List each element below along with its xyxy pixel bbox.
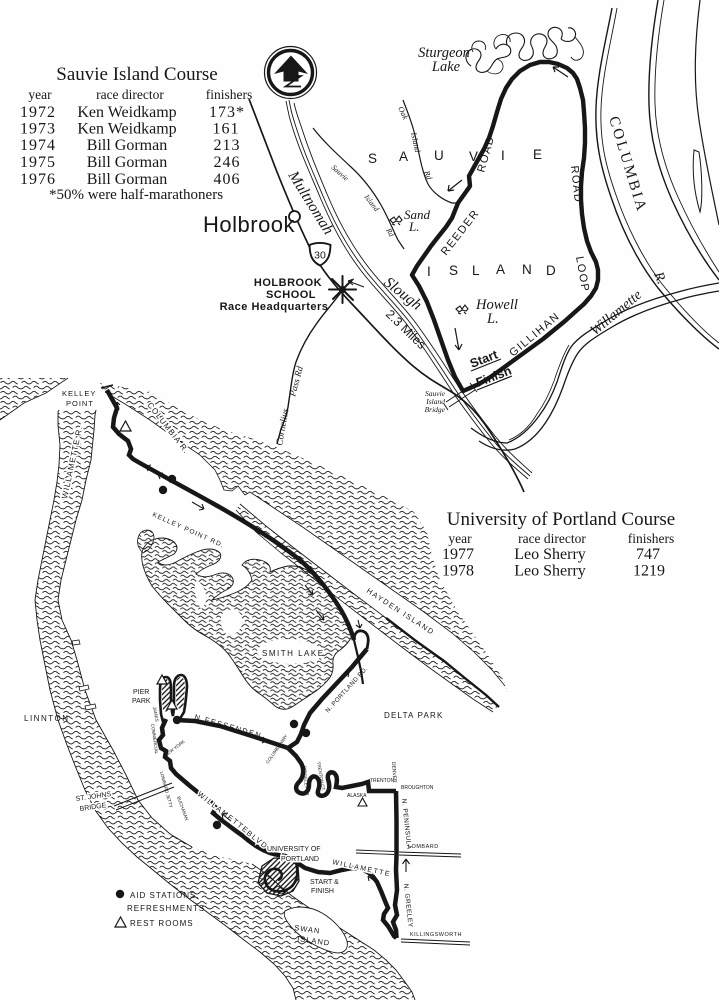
svg-text:race director: race director: [96, 87, 164, 102]
svg-text:Sauvie Island Course: Sauvie Island Course: [56, 64, 217, 85]
svg-text:I: I: [501, 148, 505, 163]
svg-text:BROUGHTON: BROUGHTON: [401, 785, 434, 791]
svg-text:year: year: [28, 87, 52, 102]
svg-text:Lake: Lake: [431, 59, 461, 75]
svg-text:I: I: [427, 264, 431, 279]
svg-text:KILLINGSWORTH: KILLINGSWORTH: [410, 932, 462, 938]
svg-text:1978: 1978: [442, 563, 474, 580]
svg-text:POINT: POINT: [66, 399, 94, 408]
svg-text:finishers: finishers: [628, 531, 675, 546]
svg-text:1219: 1219: [633, 563, 665, 580]
svg-text:30: 30: [314, 250, 326, 262]
svg-text:PARK: PARK: [132, 698, 151, 705]
svg-text:D: D: [546, 263, 556, 278]
svg-text:Ken Weidkamp: Ken Weidkamp: [77, 104, 176, 121]
svg-text:Bill Gorman: Bill Gorman: [87, 154, 167, 171]
svg-text:S: S: [449, 263, 458, 278]
svg-text:747: 747: [636, 546, 660, 563]
svg-text:161: 161: [213, 121, 240, 138]
svg-text:FINISH: FINISH: [311, 888, 334, 895]
svg-text:SMITH LAKE: SMITH LAKE: [262, 649, 325, 658]
svg-text:1976: 1976: [20, 171, 56, 188]
svg-text:1975: 1975: [20, 154, 56, 171]
svg-text:Holbrook: Holbrook: [203, 212, 296, 237]
svg-text:L: L: [472, 263, 480, 278]
svg-text:SCHOOL: SCHOOL: [266, 289, 316, 301]
svg-text:S: S: [368, 151, 377, 166]
svg-text:L.: L.: [408, 219, 419, 234]
svg-text:DELTA PARK: DELTA PARK: [384, 711, 444, 720]
svg-text:213: 213: [214, 137, 241, 154]
svg-text:PORTLAND: PORTLAND: [281, 856, 319, 863]
svg-text:A: A: [399, 149, 408, 164]
svg-text:UNIVERSITY OF: UNIVERSITY OF: [267, 846, 321, 853]
svg-text:A: A: [496, 262, 505, 277]
svg-text:246: 246: [214, 154, 241, 171]
svg-text:finishers: finishers: [206, 87, 253, 102]
svg-text:LINNTON: LINNTON: [24, 714, 69, 723]
svg-text:year: year: [448, 531, 472, 546]
svg-text:1973: 1973: [20, 121, 56, 138]
svg-text:ALASKA: ALASKA: [347, 793, 367, 799]
svg-text:L.: L.: [486, 311, 499, 327]
svg-text:TRENTON: TRENTON: [370, 778, 394, 784]
svg-text:START &: START &: [310, 879, 339, 886]
svg-text:1974: 1974: [20, 137, 56, 154]
svg-text:race director: race director: [518, 531, 586, 546]
svg-text:Race Headquarters: Race Headquarters: [220, 301, 329, 313]
svg-text:REFRESHMENTS: REFRESHMENTS: [127, 904, 205, 913]
svg-text:N: N: [522, 262, 532, 277]
svg-text:Leo Sherry: Leo Sherry: [514, 546, 586, 563]
svg-text:E: E: [533, 147, 542, 162]
svg-text:173*: 173*: [209, 104, 245, 121]
svg-text:Bridge: Bridge: [425, 405, 446, 414]
svg-text:Leo Sherry: Leo Sherry: [514, 563, 586, 580]
svg-text:KELLEY: KELLEY: [62, 389, 96, 398]
svg-text:AID STATIONS,: AID STATIONS,: [130, 891, 200, 900]
svg-text:1977: 1977: [442, 546, 474, 563]
svg-text:University of Portland Course: University of Portland Course: [447, 509, 676, 530]
svg-text:REST ROOMS: REST ROOMS: [130, 919, 194, 928]
svg-text:U: U: [434, 148, 444, 163]
svg-text:Bill Gorman: Bill Gorman: [87, 137, 167, 154]
svg-text:HOLBROOK: HOLBROOK: [254, 277, 322, 289]
svg-text:406: 406: [214, 171, 241, 188]
svg-text:1972: 1972: [20, 104, 56, 121]
svg-text:Ken Weidkamp: Ken Weidkamp: [77, 121, 176, 138]
svg-text:*50% were half-marathoners: *50% were half-marathoners: [49, 187, 223, 203]
svg-text:Bill Gorman: Bill Gorman: [87, 171, 167, 188]
svg-text:V: V: [469, 149, 478, 164]
svg-text:LOMBARD: LOMBARD: [408, 844, 439, 850]
svg-text:PIER: PIER: [133, 689, 149, 696]
